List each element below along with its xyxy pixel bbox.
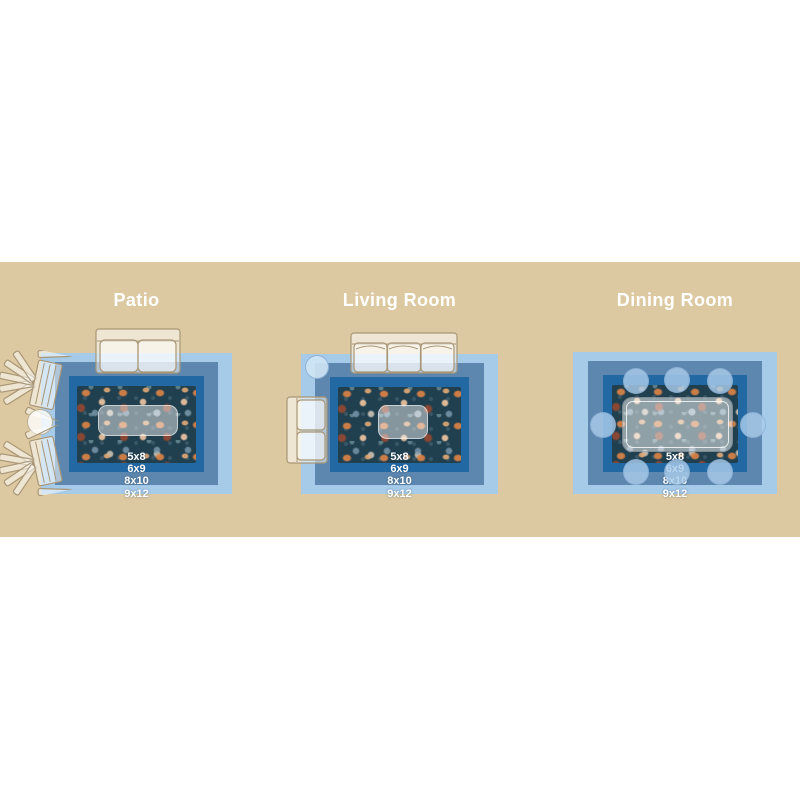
- size-label-6x9: 6x9: [301, 463, 498, 475]
- dining-chair-icon: [623, 368, 649, 394]
- room-title: Living Room: [301, 290, 498, 310]
- room-section-living-room: Living Room 5x8 6x9 8x10 9x12: [266, 262, 533, 537]
- sofa-icon: [350, 332, 458, 374]
- coffee-table-icon: [98, 405, 178, 436]
- room-section-patio: Patio 5x8 6x9 8x10 9x12: [0, 262, 266, 537]
- background-band: Patio 5x8 6x9 8x10 9x12: [0, 262, 800, 537]
- dining-chair-icon: [707, 368, 733, 394]
- room-section-dining-room: Dining Room 5x8 6x9 8x10 9x12: [533, 262, 800, 537]
- dining-chair-icon: [664, 459, 690, 485]
- size-label-8x10: 8x10: [301, 475, 498, 487]
- dining-chair-icon: [590, 412, 616, 438]
- size-label-5x8: 5x8: [301, 451, 498, 463]
- size-label-9x12: 9x12: [301, 488, 498, 500]
- dining-chair-icon: [664, 367, 690, 393]
- dining-chair-icon: [623, 459, 649, 485]
- room-title: Dining Room: [573, 290, 777, 310]
- dining-chair-icon: [740, 412, 766, 438]
- room-title: Patio: [41, 290, 232, 310]
- outdoor-loveseat-icon: [95, 328, 181, 374]
- armchair-icon: [286, 396, 328, 464]
- dining-table-icon: [622, 397, 733, 452]
- coffee-table-icon: [378, 405, 428, 439]
- size-label-9x12: 9x12: [573, 488, 777, 500]
- size-label-stack: 5x8 6x9 8x10 9x12: [301, 451, 498, 500]
- round-side-table-icon: [305, 355, 329, 379]
- dining-chair-icon: [707, 459, 733, 485]
